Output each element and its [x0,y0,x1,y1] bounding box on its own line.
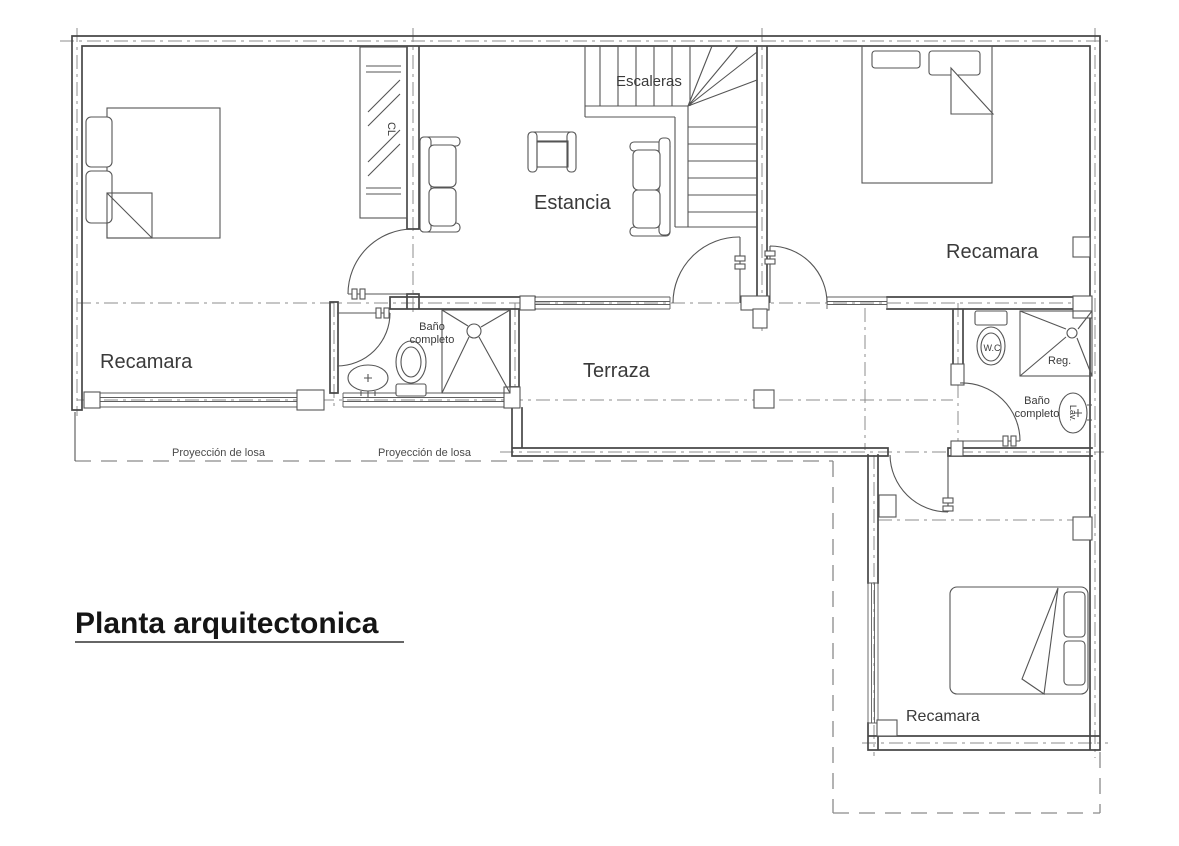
doors [337,229,1020,512]
columns [84,237,1092,736]
label-slab-projection-2: Proyección de losa [378,447,472,459]
sofa-right [630,138,670,236]
label-bedroom-right: Recamara [946,241,1039,263]
label-toilet: W.C [984,343,1001,353]
label-bath-middle-line1: Baño [419,321,445,333]
sofa-left [420,137,460,232]
bed-bottom-right [950,587,1088,694]
bed-top-right [862,46,993,183]
closet [360,47,407,218]
toilet-middle [396,341,426,396]
label-bedroom-left: Recamara [100,351,193,373]
label-bath-right-line2: completo [1015,408,1060,420]
label-stairs: Escaleras [616,73,682,90]
label-sink: Lav. [1068,405,1078,421]
title-text: Planta arquitectonica [75,607,379,640]
armchair [528,132,576,172]
bed-top-left [86,108,220,238]
label-closet: CL [385,122,397,136]
toilet-right [975,311,1007,365]
label-bath-middle-line2: completo [410,334,455,346]
sink-middle [348,365,388,397]
label-bedroom-bottom: Recamara [906,708,980,725]
label-shower: Reg. [1048,355,1071,367]
floor-plan-drawing: Recamara Estancia Terraza Escaleras Reca… [0,0,1179,846]
windows [100,297,887,723]
shower-middle [442,310,510,393]
label-terrace: Terraza [583,360,651,382]
label-bath-right-line1: Baño [1024,395,1050,407]
drawing-title: Planta arquitectonica [75,607,404,642]
label-slab-projection-1: Proyección de losa [172,447,266,459]
label-living-room: Estancia [534,192,612,214]
floor-plan-page: Recamara Estancia Terraza Escaleras Reca… [0,0,1179,846]
